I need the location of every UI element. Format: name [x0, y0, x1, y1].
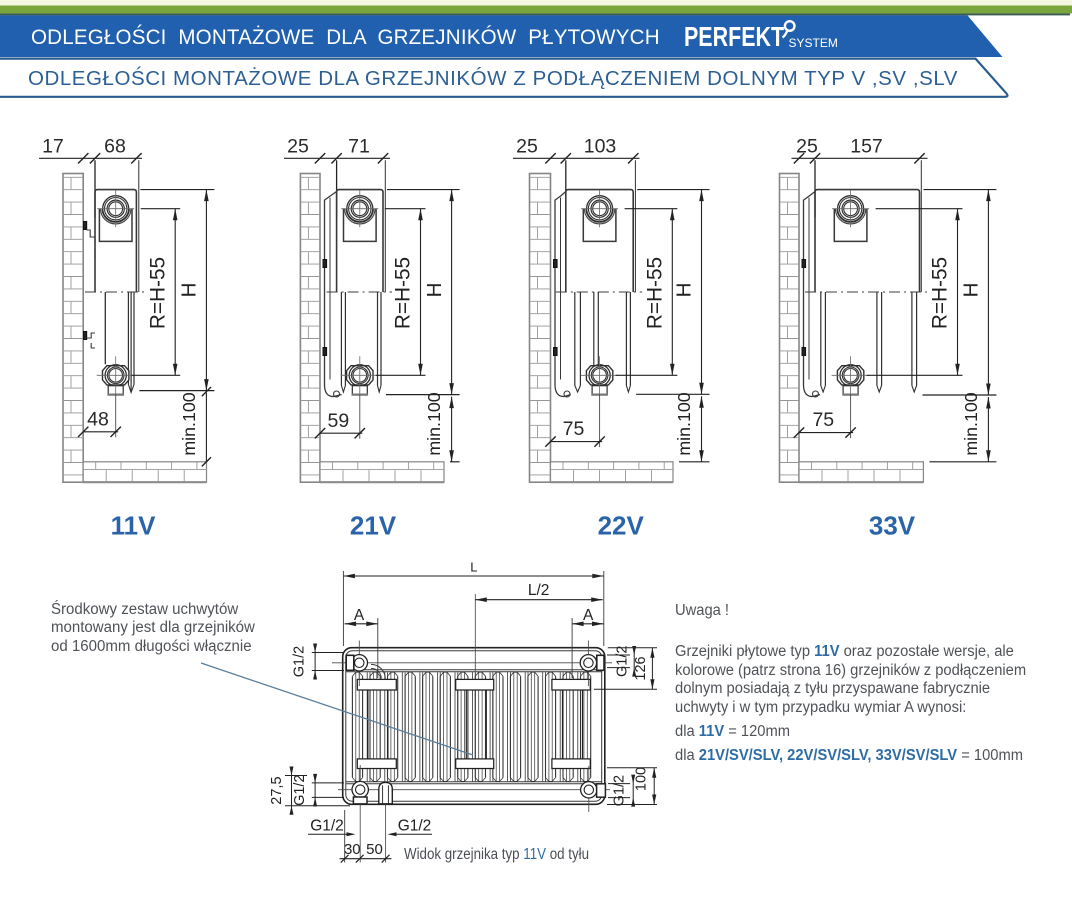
svg-text:min.100: min.100 — [961, 392, 981, 455]
svg-text:50: 50 — [366, 841, 383, 858]
svg-text:R=H-55: R=H-55 — [929, 257, 952, 329]
svg-text:G1/2: G1/2 — [398, 817, 432, 834]
svg-text:H: H — [423, 283, 446, 298]
svg-text:75: 75 — [812, 409, 834, 431]
svg-text:100: 100 — [634, 767, 650, 791]
svg-text:25: 25 — [796, 136, 818, 158]
svg-text:25: 25 — [516, 136, 538, 158]
svg-text:48: 48 — [87, 409, 109, 431]
svg-text:25: 25 — [287, 136, 309, 158]
svg-text:H: H — [673, 283, 696, 298]
svg-text:33V: 33V — [869, 511, 916, 541]
svg-text:11V: 11V — [111, 511, 156, 541]
svg-text:157: 157 — [850, 136, 883, 158]
svg-text:A: A — [583, 607, 594, 624]
svg-text:L: L — [470, 560, 477, 575]
svg-text:103: 103 — [584, 136, 617, 158]
svg-text:H: H — [178, 283, 201, 298]
svg-text:min.100: min.100 — [674, 392, 694, 455]
svg-text:H: H — [960, 283, 983, 298]
svg-text:min.100: min.100 — [424, 392, 444, 455]
svg-text:126: 126 — [633, 656, 649, 680]
svg-text:R=H-55: R=H-55 — [644, 257, 667, 329]
svg-text:68: 68 — [104, 136, 126, 158]
svg-text:59: 59 — [328, 410, 350, 432]
svg-text:75: 75 — [563, 418, 585, 440]
svg-text:21V: 21V — [350, 511, 397, 541]
svg-text:G1/2: G1/2 — [292, 646, 308, 677]
svg-text:A: A — [354, 607, 365, 624]
svg-text:R=H-55: R=H-55 — [392, 257, 415, 329]
svg-text:min.100: min.100 — [179, 392, 199, 455]
svg-text:G1/2: G1/2 — [310, 817, 344, 834]
svg-text:L/2: L/2 — [528, 582, 550, 599]
svg-text:71: 71 — [348, 136, 370, 158]
svg-text:G1/2: G1/2 — [611, 775, 627, 806]
svg-text:30: 30 — [344, 841, 361, 858]
svg-text:22V: 22V — [598, 511, 645, 541]
svg-text:G1/2: G1/2 — [615, 646, 631, 677]
svg-text:17: 17 — [42, 136, 64, 158]
svg-text:R=H-55: R=H-55 — [146, 257, 169, 329]
svg-text:27,5: 27,5 — [269, 776, 285, 804]
svg-text:G1/2: G1/2 — [292, 774, 308, 805]
